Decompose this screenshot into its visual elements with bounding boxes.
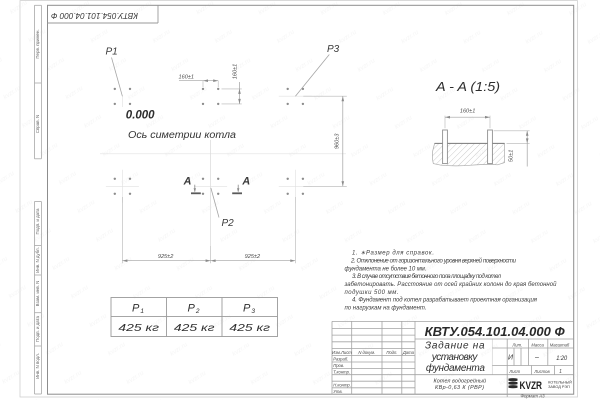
svg-text:Листов: Листов xyxy=(533,369,550,374)
svg-text:P2: P2 xyxy=(222,218,235,229)
svg-text:Дата: Дата xyxy=(402,350,415,355)
svg-text:160±1: 160±1 xyxy=(460,108,476,114)
svg-text:фундамента не более 10 мм.: фундамента не более 10 мм. xyxy=(345,266,427,272)
svg-text:Задание на: Задание на xyxy=(425,340,485,351)
svg-text:425 кг: 425 кг xyxy=(229,322,270,334)
svg-text:A: A xyxy=(183,175,192,187)
svg-text:2. Отклонение от горизонтально: 2. Отклонение от горизонтального уровня … xyxy=(350,257,517,264)
svg-text:A: A xyxy=(241,175,250,187)
svg-text:Ось симетрии котла: Ось симетрии котла xyxy=(128,130,237,141)
svg-text:Лист: Лист xyxy=(340,350,352,355)
svg-text:Утв.: Утв. xyxy=(333,389,343,394)
svg-text:A - A (1:5): A - A (1:5) xyxy=(435,80,500,94)
svg-text:Лит.: Лит. xyxy=(511,343,522,348)
svg-text:Инв. N подл.: Инв. N подл. xyxy=(35,353,40,379)
svg-text:50±1: 50±1 xyxy=(508,150,514,162)
svg-text:Формат А3: Формат А3 xyxy=(520,394,545,399)
svg-text:забетонировать. Расстояние от: забетонировать. Расстояние от осей крайн… xyxy=(344,281,558,288)
svg-text:425 кг: 425 кг xyxy=(174,322,215,334)
svg-text:Инв. N дубл.: Инв. N дубл. xyxy=(35,247,40,273)
svg-text:Т.контр.: Т.контр. xyxy=(333,370,350,375)
svg-text:по нагрузкам на фундамент.: по нагрузкам на фундамент. xyxy=(345,306,427,312)
svg-text:–: – xyxy=(534,354,539,361)
svg-text:Подп. и дата: Подп. и дата xyxy=(35,208,40,234)
svg-text:Разраб.: Разраб. xyxy=(333,356,348,361)
svg-text:Пров.: Пров. xyxy=(333,363,344,368)
svg-text:Масса: Масса xyxy=(531,343,544,348)
svg-text:КВТУ.054.101.04.000 Ф: КВТУ.054.101.04.000 Ф xyxy=(425,324,566,339)
svg-text:фундамента: фундамента xyxy=(426,362,485,374)
svg-text:1: 1 xyxy=(559,369,562,375)
svg-text:КВр-0,63 К (РВР): КВр-0,63 К (РВР) xyxy=(435,385,484,391)
svg-text:4. Фундамент под котел разраба: 4. Фундамент под котел разрабатывает про… xyxy=(352,298,538,304)
svg-text:925±2: 925±2 xyxy=(245,254,261,260)
svg-text:3. В случае отсутствия бетонно: 3. В случае отсутствия бетонного пола пл… xyxy=(352,274,502,280)
svg-text:425 кг: 425 кг xyxy=(118,322,159,334)
svg-text:N докум.: N докум. xyxy=(358,350,375,355)
svg-text:Взам. инв. N: Взам. инв. N xyxy=(35,281,40,307)
svg-text:P1: P1 xyxy=(106,47,118,58)
svg-text:960±3: 960±3 xyxy=(335,133,341,149)
svg-text:1:20: 1:20 xyxy=(556,355,567,362)
svg-text:160±1: 160±1 xyxy=(232,64,238,80)
svg-text:установку: установку xyxy=(431,352,479,363)
svg-text:Н.контр.: Н.контр. xyxy=(333,383,351,388)
svg-text:925±2: 925±2 xyxy=(158,254,174,260)
svg-text:подушки 500 мм.: подушки 500 мм. xyxy=(345,290,399,296)
svg-text:Котел водогрейный: Котел водогрейный xyxy=(434,378,487,385)
svg-text:160±1: 160±1 xyxy=(179,74,195,80)
svg-text:P3: P3 xyxy=(327,44,340,55)
svg-text:0.000: 0.000 xyxy=(126,110,155,122)
svg-text:Справ. N: Справ. N xyxy=(35,115,40,133)
svg-text:KVZR: KVZR xyxy=(520,380,543,392)
svg-text:КОТЕЛЬНЫЙ: КОТЕЛЬНЫЙ xyxy=(548,380,572,384)
svg-text:Подп.: Подп. xyxy=(386,350,397,355)
svg-text:Лист: Лист xyxy=(508,369,520,374)
svg-text:Масштаб: Масштаб xyxy=(550,343,570,348)
svg-text:Изм.: Изм. xyxy=(332,350,341,355)
svg-text:Перв. примен.: Перв. примен. xyxy=(35,29,40,58)
svg-text:Подп. и дата: Подп. и дата xyxy=(35,316,40,342)
svg-text:ЗАВОД РЭП: ЗАВОД РЭП xyxy=(548,385,570,389)
svg-text:КВТУ.054.101.04.000 Ф: КВТУ.054.101.04.000 Ф xyxy=(50,11,138,20)
svg-text:1. ∗Размер для справок.: 1. ∗Размер для справок. xyxy=(352,251,434,257)
